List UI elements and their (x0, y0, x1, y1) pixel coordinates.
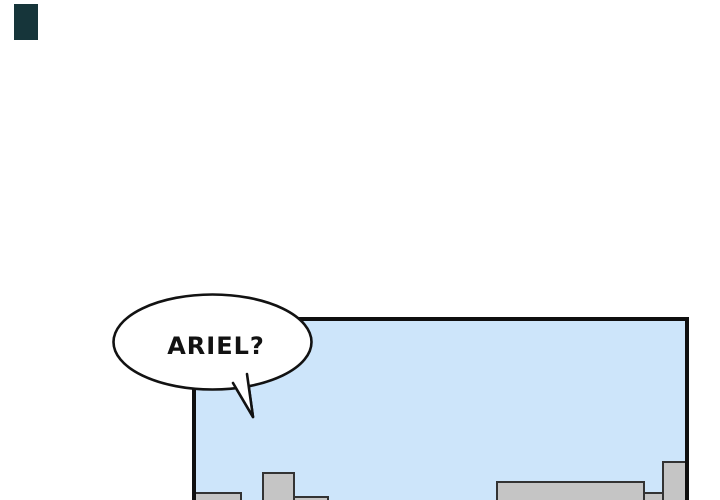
building-silhouette-right-tall (662, 461, 685, 500)
comic-page: ARIEL? (0, 0, 720, 500)
building-silhouette-connector (645, 492, 662, 500)
previous-panel-fragment (14, 4, 38, 40)
building-silhouette-mid-tall (262, 472, 295, 500)
building-silhouette-left (196, 492, 242, 500)
building-silhouette-wide (496, 481, 645, 500)
building-silhouette-mid-low (295, 496, 329, 500)
speech-bubble-text: ARIEL? (140, 332, 292, 360)
